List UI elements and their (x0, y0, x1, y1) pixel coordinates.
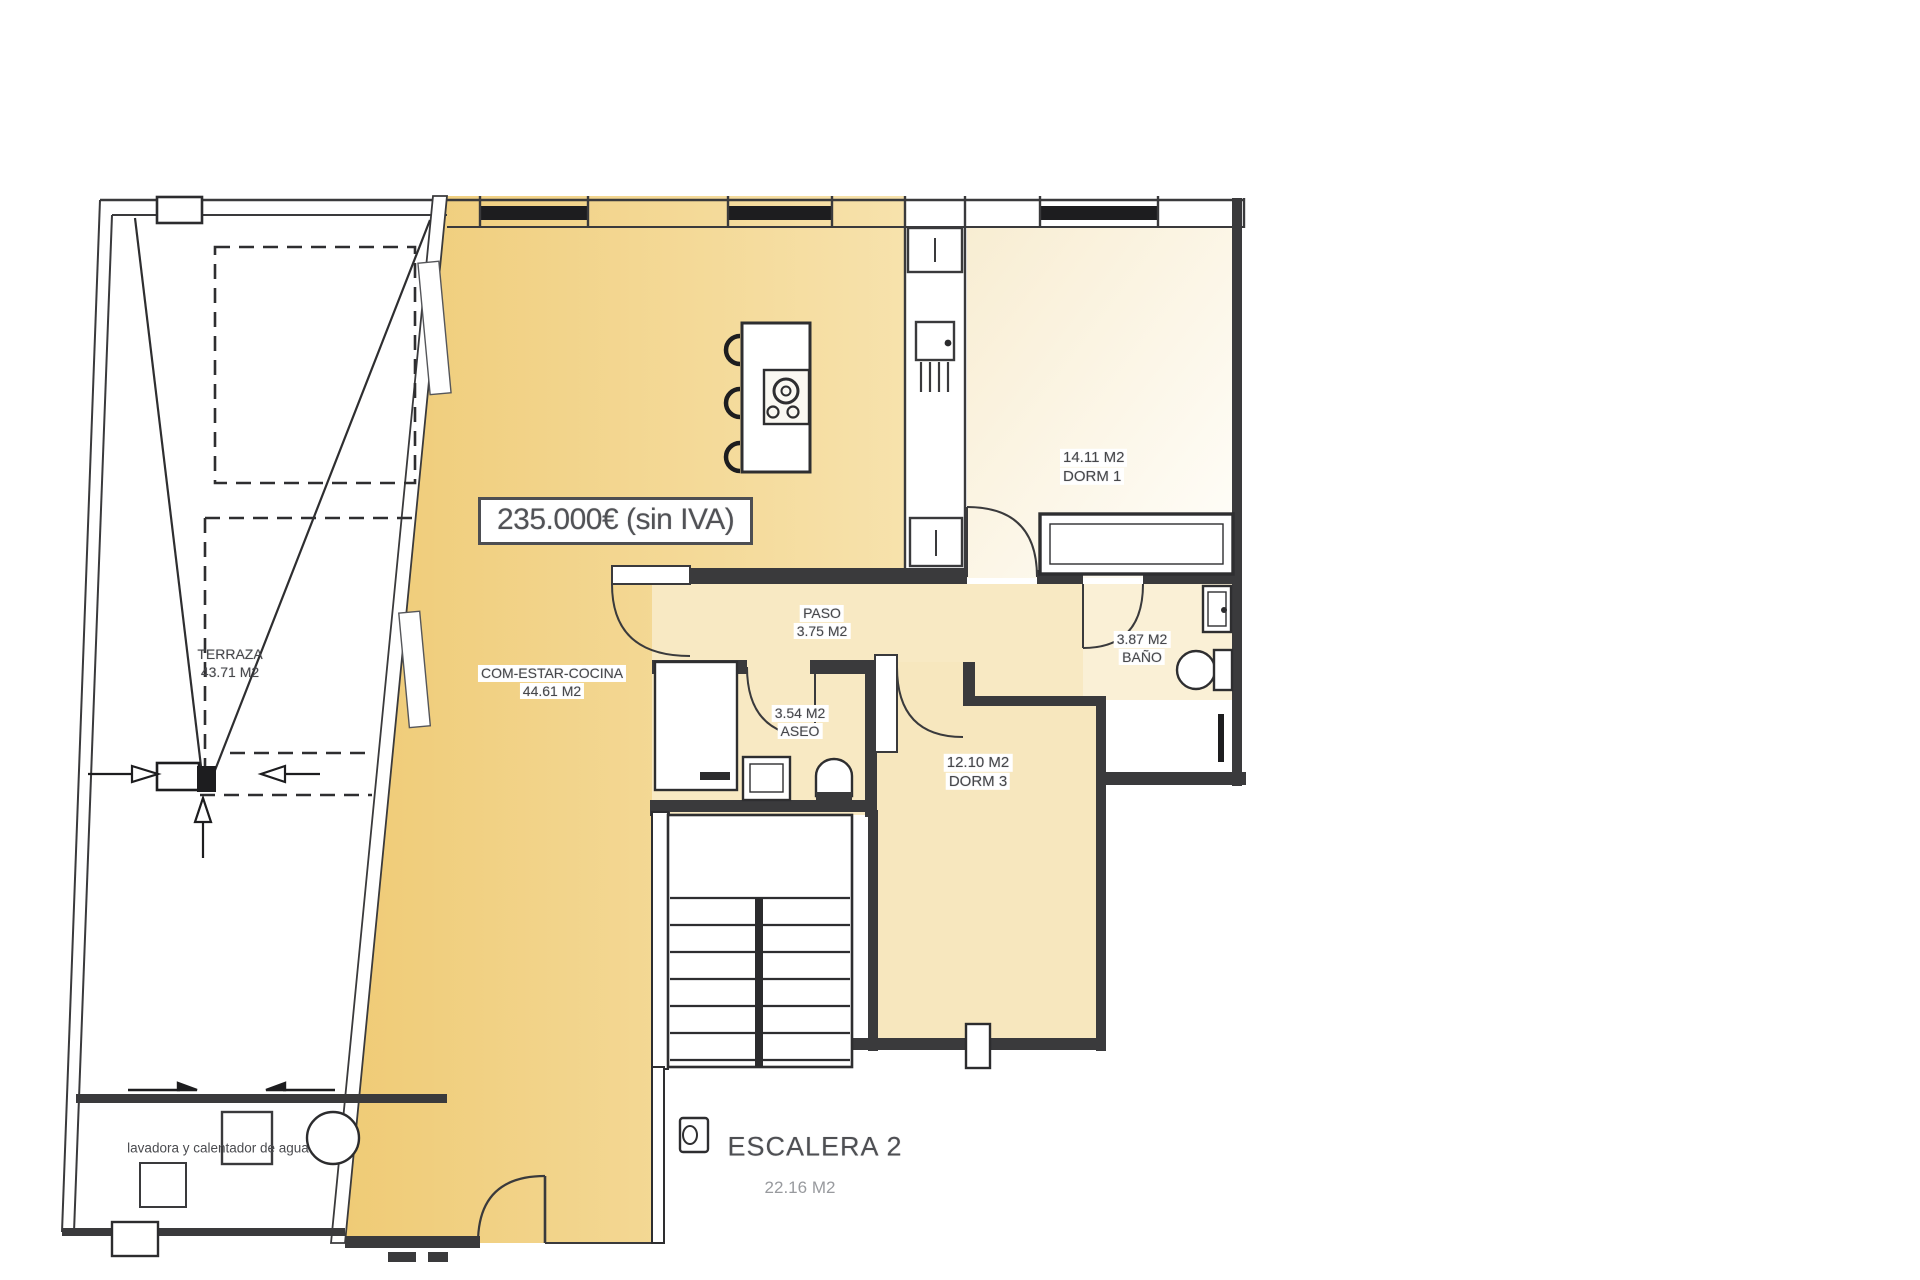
landing-detail-bar (1218, 714, 1224, 762)
window-bar (480, 206, 588, 220)
door-pivot-symbol (680, 1118, 708, 1152)
wardrobe (1040, 514, 1233, 574)
room-name: DORM 1 (1060, 468, 1124, 486)
sliding-door-arrows (128, 1083, 335, 1090)
room-label-bano: 3.87 M2 BAÑO (1114, 631, 1171, 665)
shower-tray (655, 662, 737, 790)
room-label-paso: PASO 3.75 M2 (794, 605, 851, 639)
landing-room (1106, 706, 1236, 772)
room-label-dorm1: 14.11 M2 DORM 1 (1060, 449, 1127, 485)
window-bar (1040, 206, 1158, 220)
washer-symbol (140, 1163, 186, 1207)
room-name: PASO (800, 605, 844, 622)
floor-plan: 235.000€ (sin IVA) TERRAZA 43.71 M2 COM-… (0, 0, 1920, 1280)
stair-stringer (755, 898, 763, 1067)
arrow-left-icon (261, 766, 320, 782)
terrace-drain-symbol (157, 763, 216, 792)
room-label-escalera: ESCALERA 2 (727, 1132, 902, 1163)
room-label-com-estar-cocina: COM-ESTAR-COCINA 44.61 M2 (478, 665, 626, 699)
room-area-escalera: 22.16 M2 (765, 1178, 836, 1198)
room-area: 3.54 M2 (772, 705, 829, 722)
room-name: ASEO (778, 723, 823, 740)
room-label-dorm3: 12.10 M2 DORM 3 (944, 754, 1013, 790)
arrow-right-icon (88, 766, 158, 782)
room-area: 3.75 M2 (794, 623, 851, 640)
room-area: 3.87 M2 (1114, 631, 1171, 648)
room-name: TERRAZA (194, 646, 265, 663)
right-outer-wall (1232, 198, 1242, 786)
room-label-terraza: TERRAZA 43.71 M2 (194, 646, 265, 680)
door-leaf (875, 655, 897, 752)
toilet-tank (1214, 650, 1232, 690)
toilet (816, 759, 852, 796)
dorm3-door-marker (966, 1024, 990, 1068)
terrace-window (157, 197, 202, 223)
toilet-bowl (1177, 651, 1215, 689)
window-bar (728, 206, 832, 220)
floor-plan-drawing (0, 0, 1920, 1280)
room-area: 43.71 M2 (198, 664, 262, 681)
door-leaf (612, 566, 690, 584)
bottom-right-wall (1106, 772, 1246, 785)
heater-square-symbol (222, 1112, 272, 1164)
room-area: 44.61 M2 (520, 683, 584, 700)
room-name: BAÑO (1119, 649, 1165, 666)
door-marker (112, 1222, 158, 1256)
room-area: 14.11 M2 (1060, 449, 1127, 467)
room-name: COM-ESTAR-COCINA (478, 665, 626, 682)
room-name: DORM 3 (946, 773, 1010, 791)
room-area: 12.10 M2 (944, 754, 1013, 772)
arrow-up-icon (195, 798, 211, 858)
dorm3-floor (865, 662, 1098, 1045)
utility-note-label: lavadora y calentador de agua (127, 1141, 309, 1156)
price-label: 235.000€ (sin IVA) (478, 497, 753, 545)
room-label-aseo: 3.54 M2 ASEO (772, 705, 829, 739)
boiler-circle-symbol (307, 1112, 359, 1164)
